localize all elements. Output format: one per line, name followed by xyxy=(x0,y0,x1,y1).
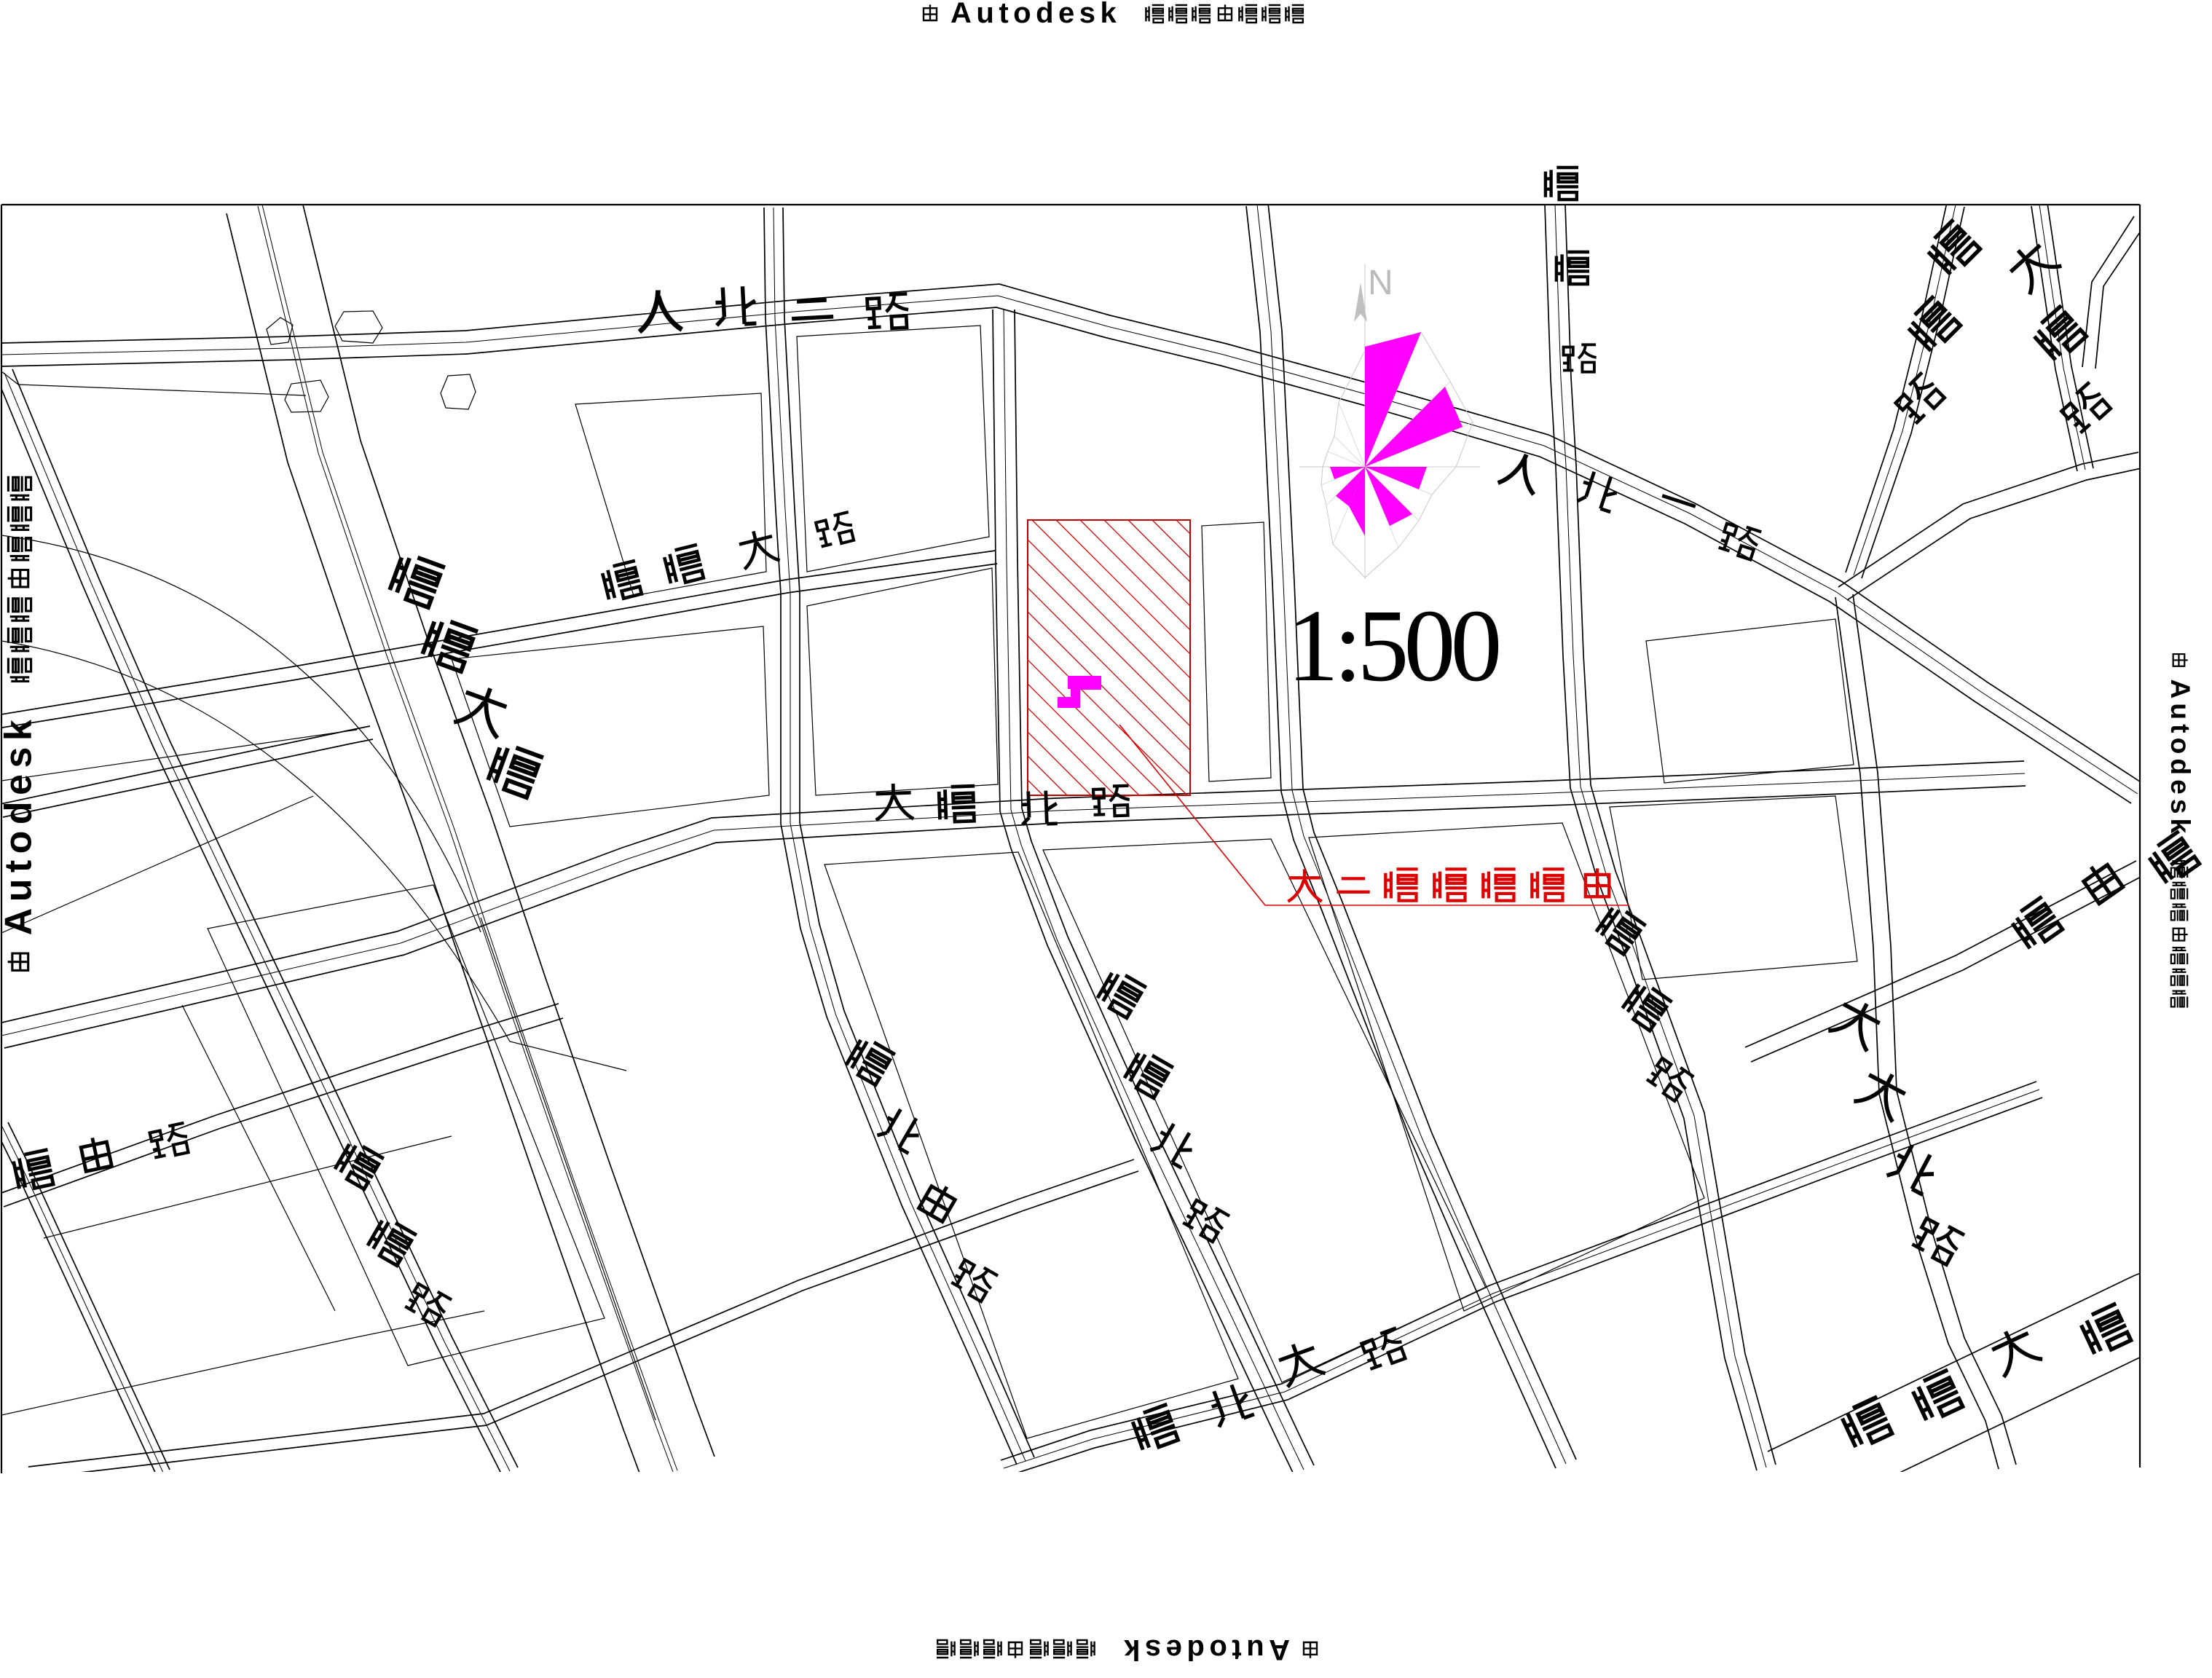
svg-text:Autodesk: Autodesk xyxy=(1119,1634,1290,1666)
svg-text:N: N xyxy=(1368,264,1393,302)
svg-text:Autodesk: Autodesk xyxy=(950,0,1121,29)
svg-text:Autodesk: Autodesk xyxy=(0,714,40,936)
svg-text:Autodesk: Autodesk xyxy=(2165,679,2196,838)
svg-text:1:500: 1:500 xyxy=(1287,588,1498,703)
